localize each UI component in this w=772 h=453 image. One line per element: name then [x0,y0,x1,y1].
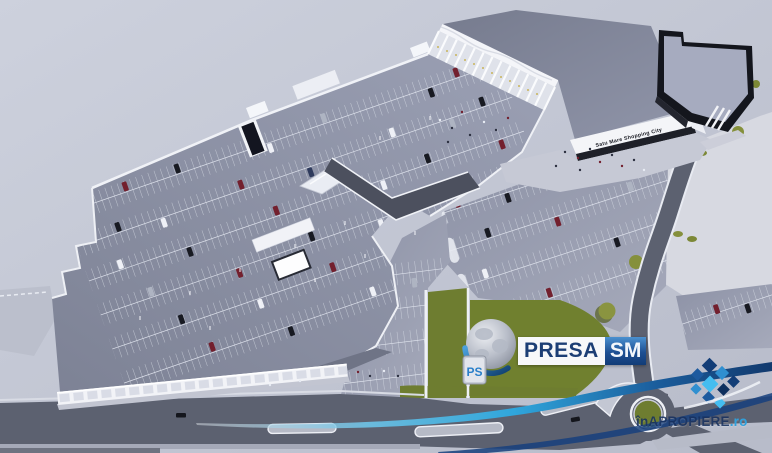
lawn-strip [400,385,444,398]
mosaic-diamonds-icon [670,352,770,414]
apropiere-wordmark-text: înAPROPIERE [636,414,730,429]
presa-sm-watermark: PS PRESA SM [460,316,640,396]
hedge [673,231,683,237]
road-edge [0,448,160,453]
car-on-road [176,413,186,418]
globe-icon: PS [460,316,524,392]
apropiere-wordmark: înAPROPIERE.ro [636,414,748,429]
aerial-rendering-screenshot: Satu Mare Shopping City [0,0,772,453]
logo-monogram: PS [466,365,482,379]
apropiere-watermark: înAPROPIERE.ro [630,352,772,442]
median-island [268,423,336,433]
presa-wordmark-text: PRESA [518,337,605,365]
hedge [687,236,697,242]
document-icon: PS [463,356,486,384]
apropiere-tld-text: .ro [730,414,748,429]
presa-wordmark: PRESA SM [518,337,646,365]
